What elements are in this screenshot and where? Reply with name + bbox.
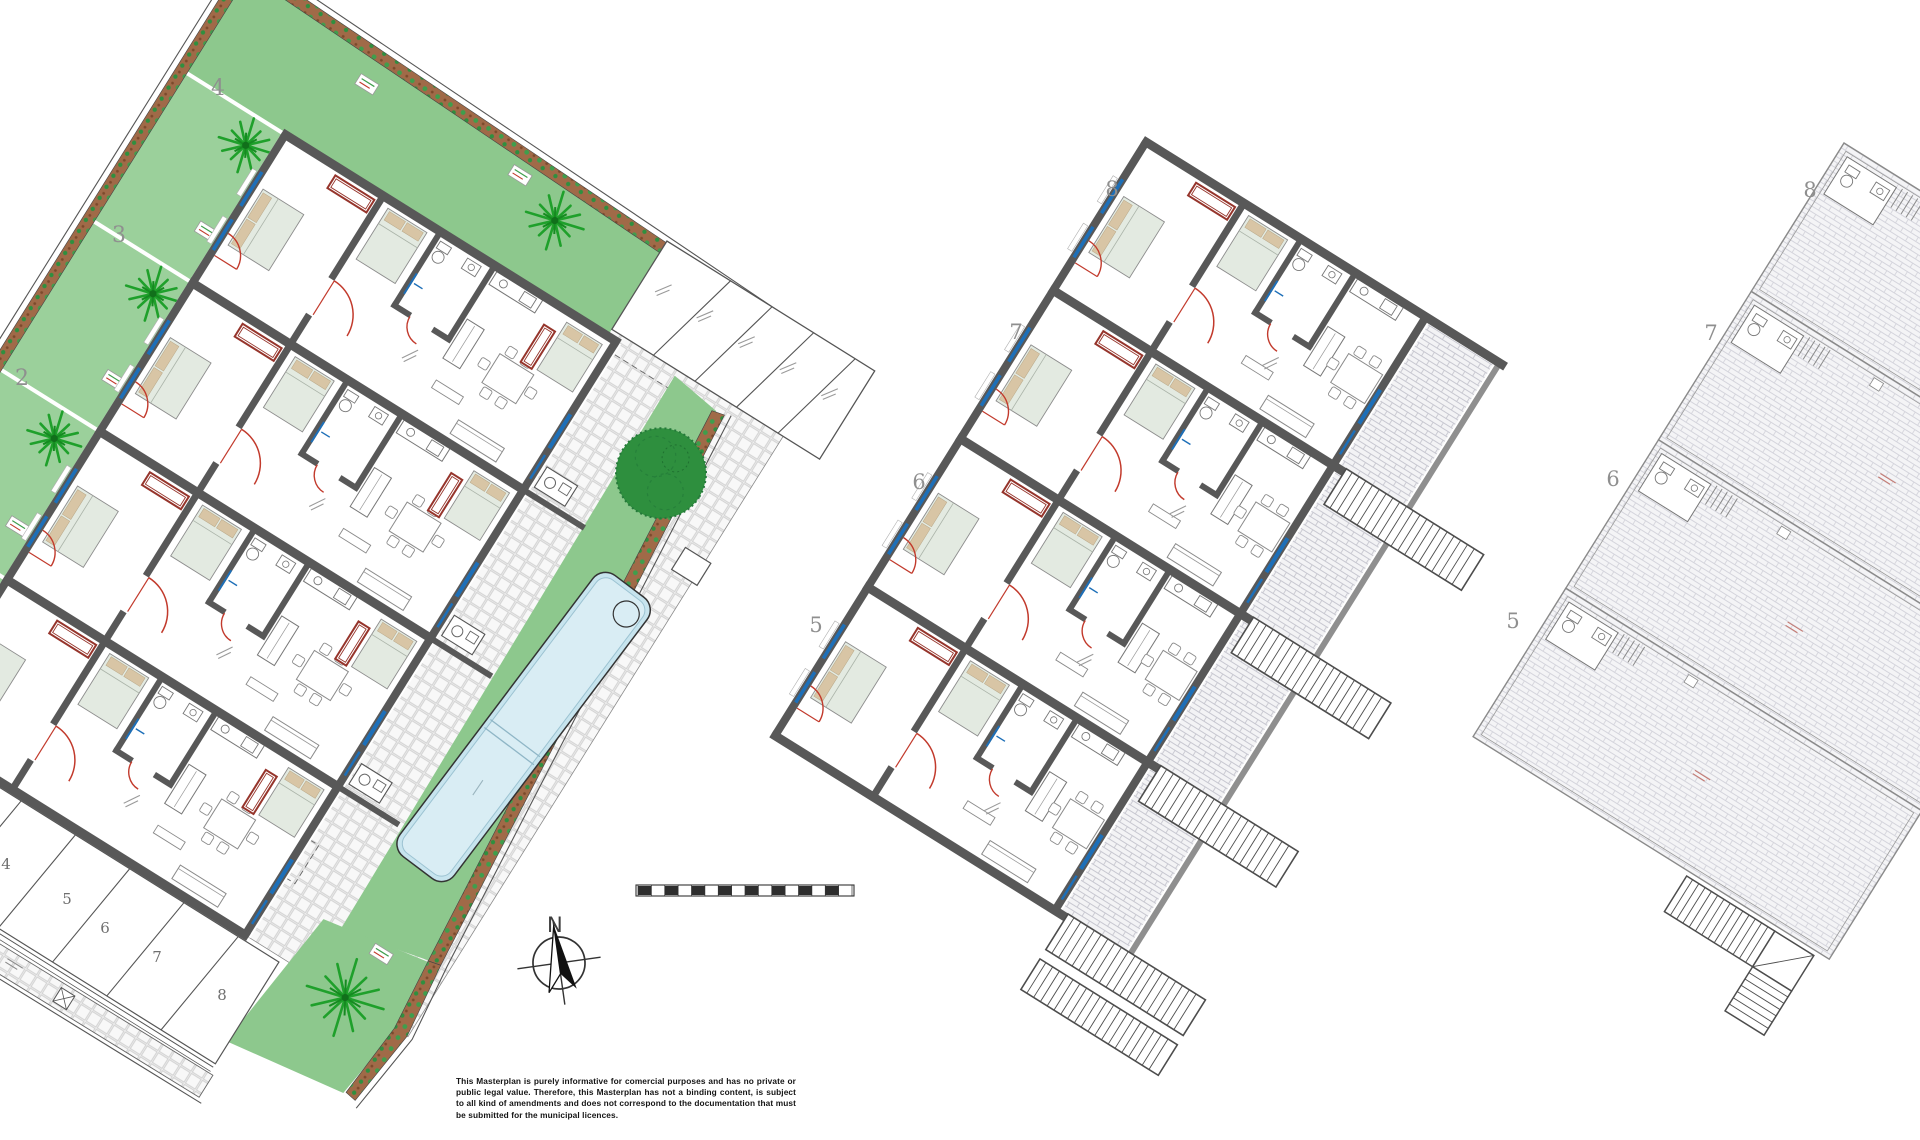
unit-label: 6 bbox=[912, 470, 925, 494]
disclaimer-text: This Masterplan is purely informative fo… bbox=[456, 1076, 796, 1121]
roof-plan-block bbox=[1421, 143, 1920, 1043]
unit-label: 7 bbox=[152, 948, 162, 966]
unit-label: 5 bbox=[1506, 609, 1519, 633]
unit-label: 6 bbox=[100, 919, 110, 937]
unit-label: 7 bbox=[1009, 320, 1022, 344]
site-plan-ground bbox=[0, 0, 887, 1140]
unit-label: 2 bbox=[15, 366, 29, 391]
unit-label: 8 bbox=[1105, 177, 1118, 201]
masterplan-page: 4328765876545678 N This Masterplan is pu… bbox=[0, 0, 1920, 1140]
unit-label: 8 bbox=[217, 986, 227, 1004]
unit-label: 4 bbox=[1, 855, 11, 873]
unit-label: 5 bbox=[62, 890, 72, 908]
unit-label: 8 bbox=[1803, 178, 1816, 202]
unit-label: 4 bbox=[211, 76, 225, 101]
floor-plan-block bbox=[722, 133, 1577, 1075]
unit-label: 6 bbox=[1606, 467, 1619, 491]
scale-bar bbox=[636, 885, 854, 896]
masterplan-drawing: 4328765876545678 N bbox=[0, 0, 1920, 1140]
north-arrow: N bbox=[512, 913, 607, 1010]
unit-label: 5 bbox=[809, 613, 822, 637]
unit-label: 3 bbox=[112, 223, 126, 248]
unit-label: 7 bbox=[1704, 321, 1717, 345]
